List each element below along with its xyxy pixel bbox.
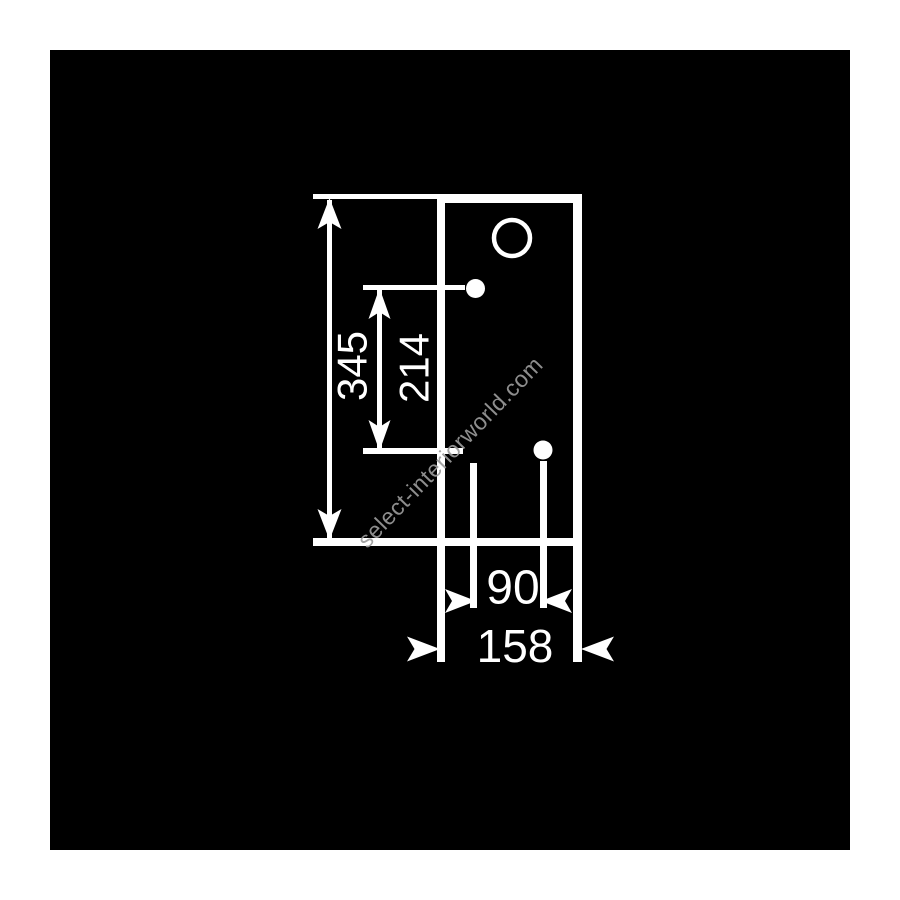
dim-label-214: 214 bbox=[391, 333, 438, 403]
dot-marker-lower bbox=[534, 441, 553, 460]
tick-line-upper bbox=[363, 285, 465, 290]
panel-right-edge bbox=[573, 194, 582, 662]
top-extension-line bbox=[313, 194, 445, 199]
panel-top-edge bbox=[437, 194, 582, 203]
extension-line-90-right bbox=[540, 461, 547, 608]
dim-label-345: 345 bbox=[329, 331, 376, 401]
dim-label-90: 90 bbox=[486, 562, 539, 615]
dim-label-158: 158 bbox=[477, 620, 554, 672]
dot-marker-upper bbox=[466, 279, 485, 298]
dimension-drawing: 345 214 90 158 select-interiorworld.com bbox=[0, 0, 900, 900]
diagram-page: 345 214 90 158 select-interiorworld.com bbox=[0, 0, 900, 900]
extension-line-90-left bbox=[470, 463, 477, 608]
panel-left-edge bbox=[437, 194, 445, 662]
